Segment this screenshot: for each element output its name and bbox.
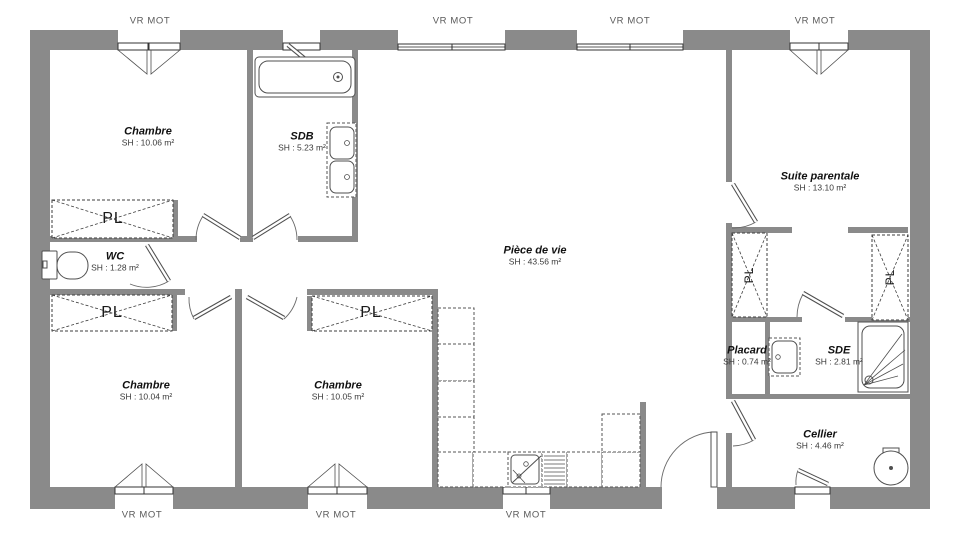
cellar-door-threshold xyxy=(795,487,830,494)
room-area: SH : 4.46 m² xyxy=(796,441,844,452)
room-label-bedroom-1: Chambre SH : 10.06 m² xyxy=(122,126,174,149)
toilet xyxy=(42,251,88,279)
door-sdb xyxy=(253,215,297,240)
room-label-bedroom-3: Chambre SH : 10.05 m² xyxy=(312,380,364,403)
room-name: Pièce de vie xyxy=(504,245,567,257)
window-bay-2 xyxy=(577,44,683,50)
room-area: SH : 10.06 m² xyxy=(122,138,174,149)
room-name: Chambre xyxy=(122,126,174,138)
window-bedroom-top xyxy=(118,43,180,74)
door-dressing-sde xyxy=(797,293,843,317)
door-bedroom-bl xyxy=(189,297,231,319)
closet-label: PL xyxy=(360,304,382,322)
room-label-sde: SDE SH : 2.81 m² xyxy=(815,345,863,368)
door-entrance xyxy=(661,432,717,487)
water-heater xyxy=(874,448,908,485)
room-label-wc: WC SH : 1.28 m² xyxy=(91,251,139,274)
room-name: Placard xyxy=(723,345,771,357)
room-label-cellar: Cellier SH : 4.46 m² xyxy=(796,429,844,452)
door-suite xyxy=(732,184,756,228)
door-cellar xyxy=(733,401,754,446)
closet-label: PL xyxy=(102,210,124,228)
room-label-placard: Placard SH : 0.74 m² xyxy=(723,345,771,368)
room-name: WC xyxy=(91,251,139,263)
closets xyxy=(52,200,908,331)
double-sink-vanity xyxy=(327,123,356,197)
shutter-label: VR MOT xyxy=(433,16,474,27)
door-bedroom-top xyxy=(196,215,240,240)
room-name: Chambre xyxy=(120,380,172,392)
room-name: SDE xyxy=(815,345,863,357)
window-bedroom-bl xyxy=(115,464,173,494)
floor-plan-drawing xyxy=(0,0,960,538)
shutter-label: VR MOT xyxy=(610,16,651,27)
room-name: Suite parentale xyxy=(781,171,860,183)
room-area: SH : 43.56 m² xyxy=(504,257,567,268)
room-name: SDB xyxy=(278,131,326,143)
window-kitchen xyxy=(503,487,550,494)
room-area: SH : 13.10 m² xyxy=(781,183,860,194)
closet-label: PL xyxy=(883,269,897,286)
window-bedroom-br xyxy=(308,464,367,494)
room-label-bedroom-2: Chambre SH : 10.04 m² xyxy=(120,380,172,403)
window-suite xyxy=(790,43,848,74)
exterior-walls xyxy=(30,30,930,509)
room-area: SH : 10.04 m² xyxy=(120,392,172,403)
room-area: SH : 5.23 m² xyxy=(278,143,326,154)
shower xyxy=(858,322,908,392)
window-bay-1 xyxy=(398,44,505,50)
room-area: SH : 1.28 m² xyxy=(91,263,139,274)
closet-label: PL xyxy=(742,267,756,284)
shutter-label: VR MOT xyxy=(130,16,171,27)
room-label-living: Pièce de vie SH : 43.56 m² xyxy=(504,245,567,268)
shutter-label: VR MOT xyxy=(506,510,547,521)
room-label-sdb: SDB SH : 5.23 m² xyxy=(278,131,326,154)
door-bedroom-br xyxy=(247,297,297,319)
closet-label: PL xyxy=(101,304,123,322)
bathtub xyxy=(255,57,355,97)
room-name: Cellier xyxy=(796,429,844,441)
floor-plan: Chambre SH : 10.06 m² SDB SH : 5.23 m² P… xyxy=(0,0,960,538)
room-area: SH : 10.05 m² xyxy=(312,392,364,403)
room-area: SH : 2.81 m² xyxy=(815,357,863,368)
door-cellar-back xyxy=(796,470,828,485)
shutter-label: VR MOT xyxy=(795,16,836,27)
room-label-suite: Suite parentale SH : 13.10 m² xyxy=(781,171,860,194)
interior-walls xyxy=(50,50,910,487)
room-area: SH : 0.74 m² xyxy=(723,357,771,368)
shutter-label: VR MOT xyxy=(122,510,163,521)
room-name: Chambre xyxy=(312,380,364,392)
washbasin-sde xyxy=(769,338,800,376)
fixtures xyxy=(42,57,908,487)
shutter-label: VR MOT xyxy=(316,510,357,521)
